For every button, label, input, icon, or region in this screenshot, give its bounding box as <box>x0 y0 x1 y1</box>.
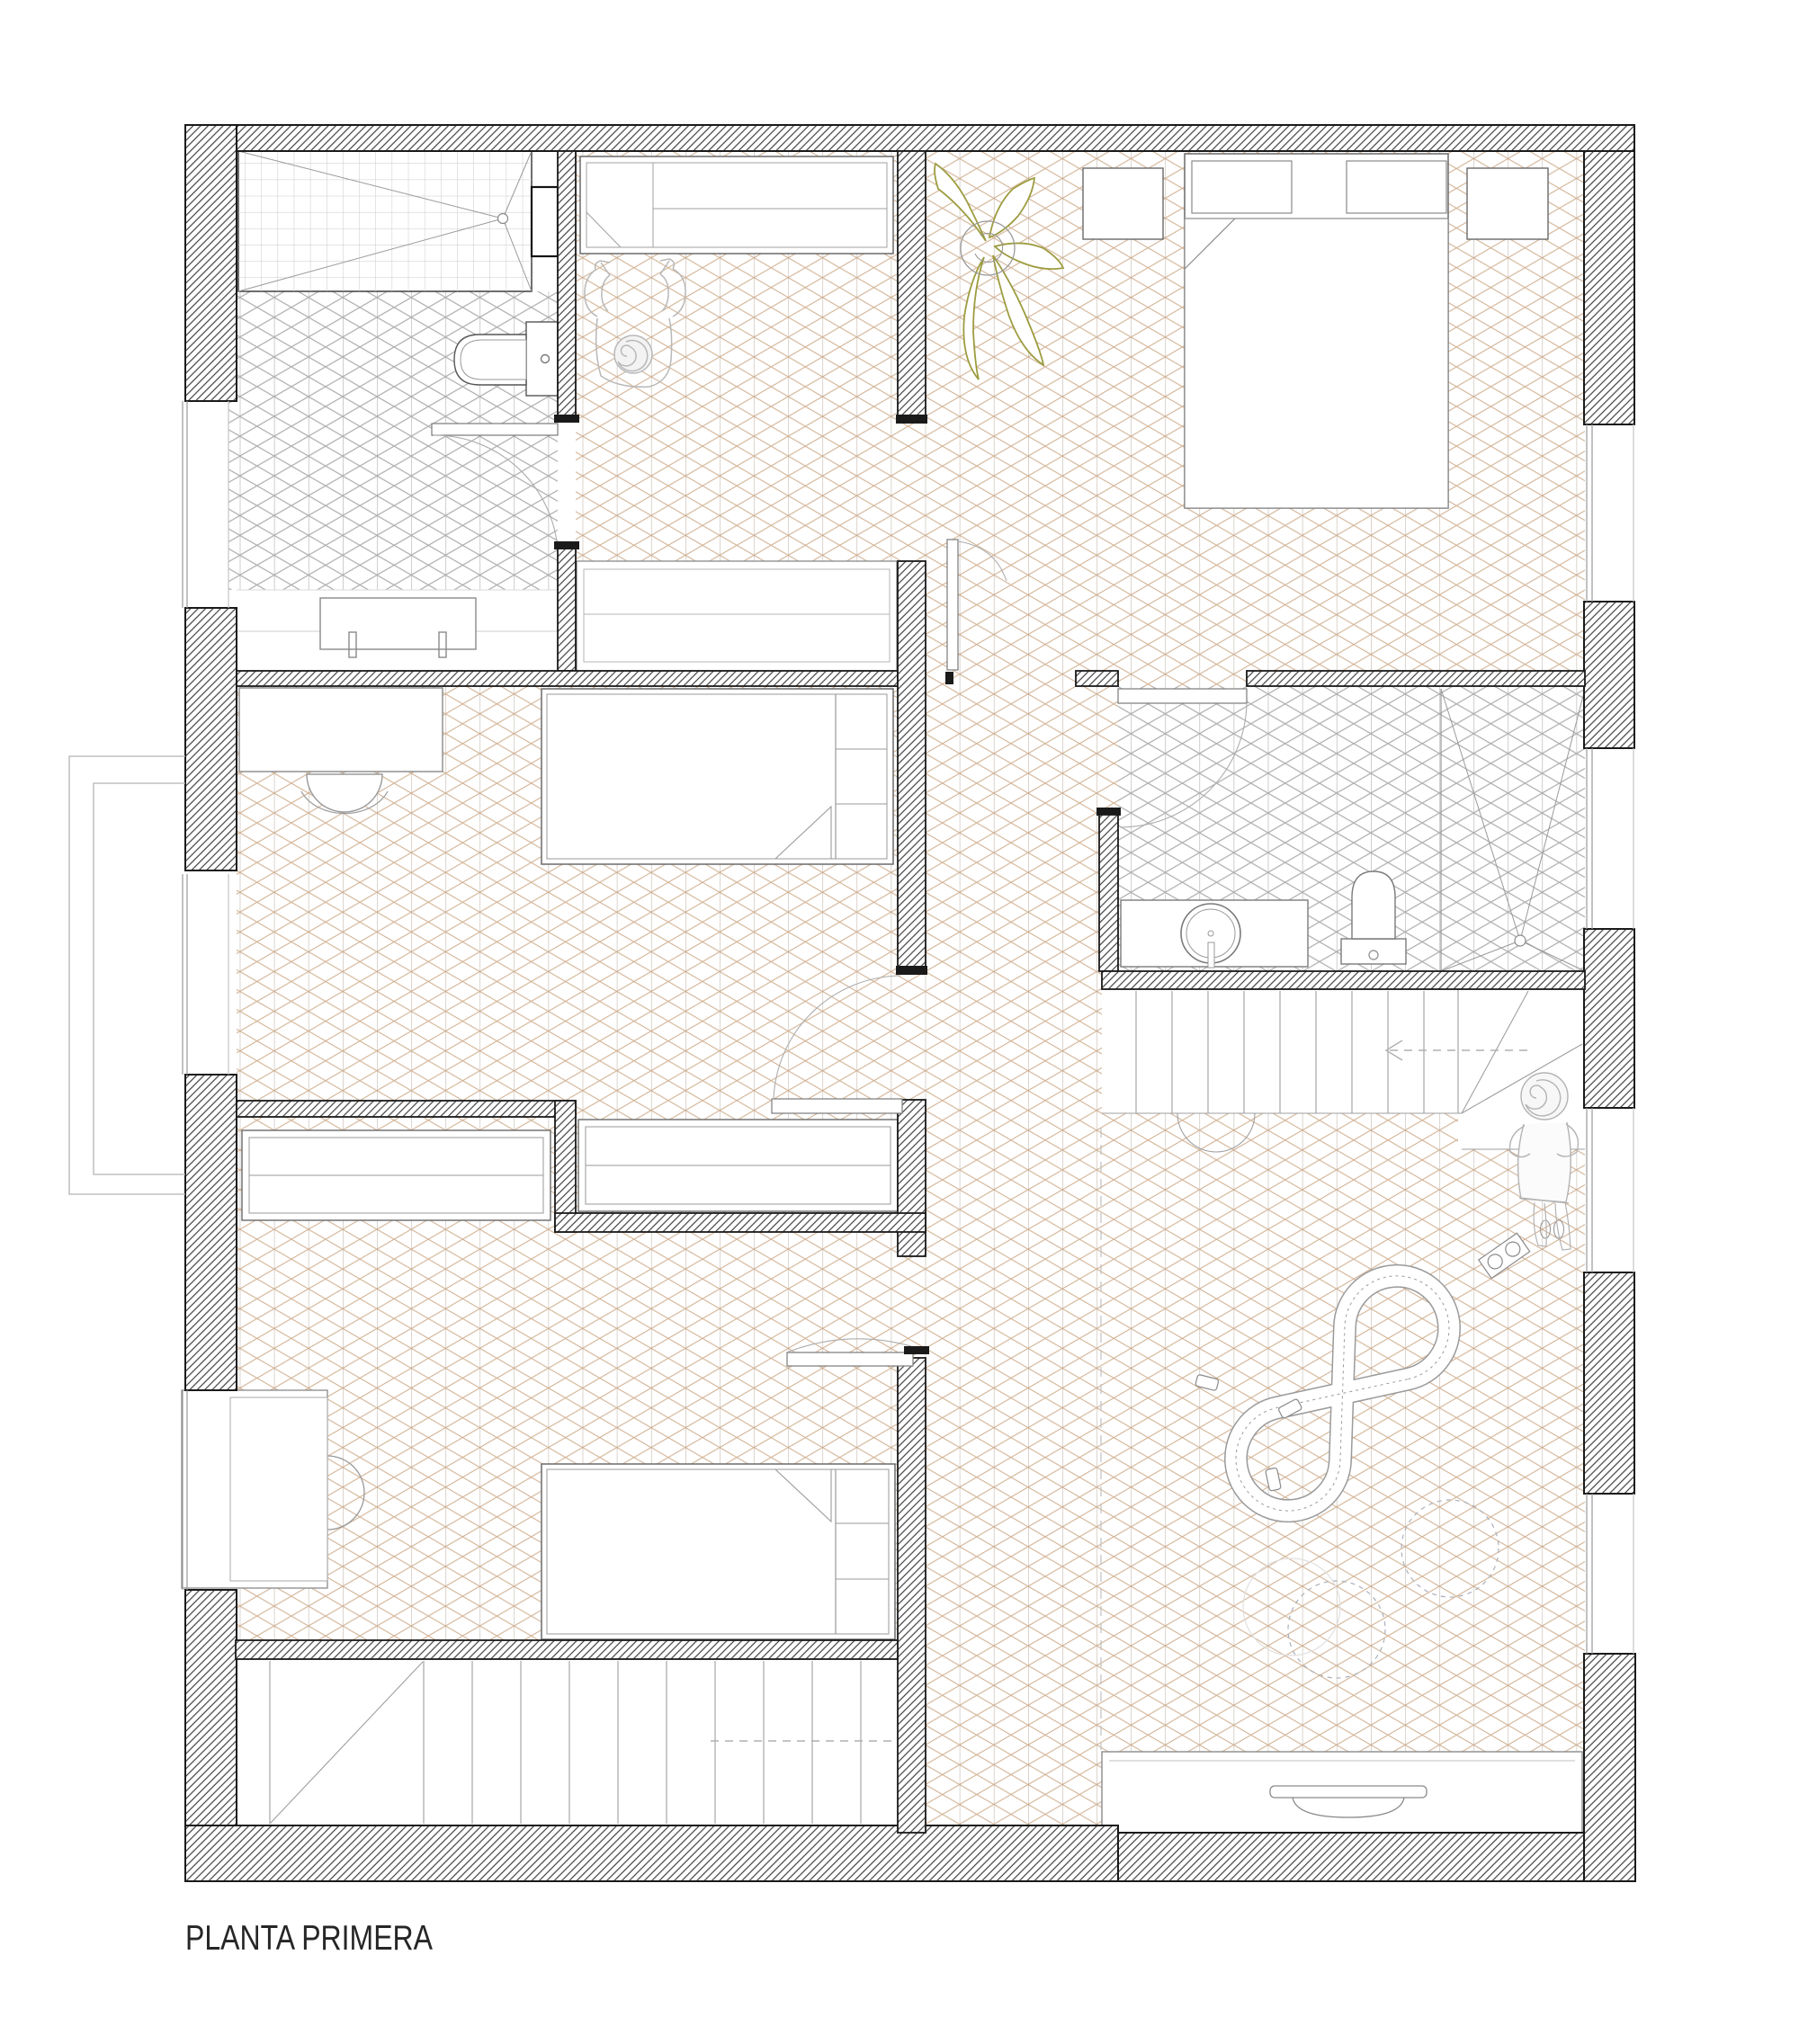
svg-text:PLANTA PRIMERA: PLANTA PRIMERA <box>185 1919 433 1958</box>
